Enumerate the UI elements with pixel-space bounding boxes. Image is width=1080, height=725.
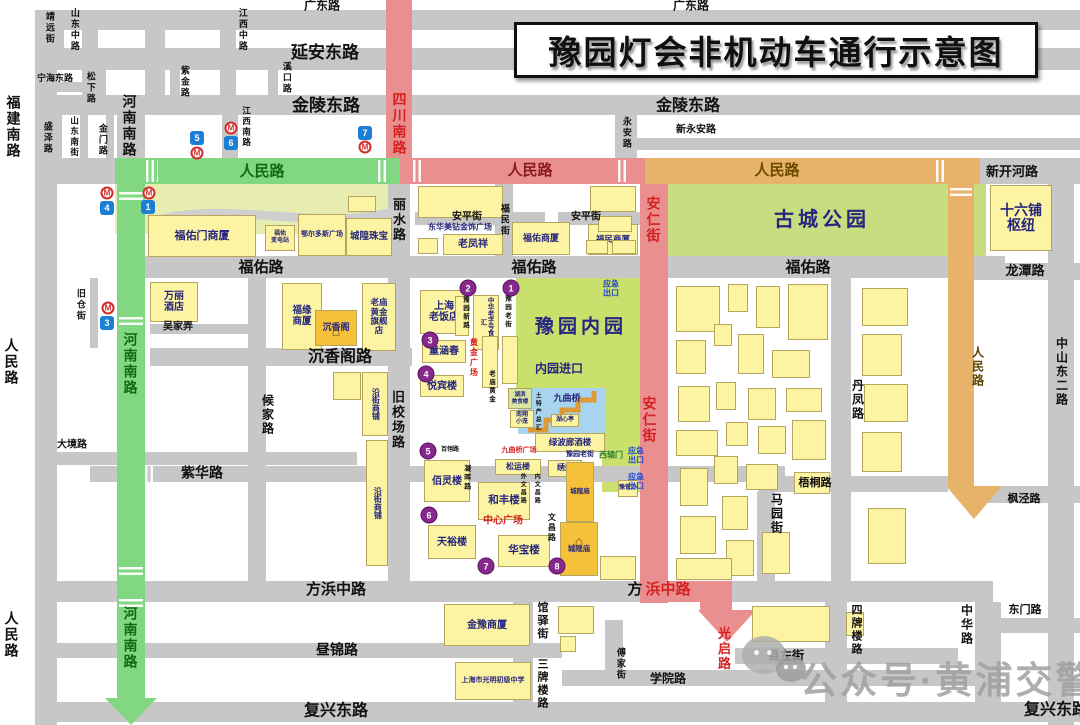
building <box>333 372 361 400</box>
building-label: 沿街商铺 <box>373 487 382 519</box>
metro-logo-icon: M <box>143 187 156 200</box>
street-label: 永安路 <box>621 117 631 150</box>
street-label: 应急 出口 <box>628 447 644 464</box>
street-label: 福建南路 <box>5 95 20 159</box>
metro-logo-icon: M <box>191 147 204 160</box>
street-label: 丹凤路 <box>851 379 864 421</box>
street-label: 福佑路 <box>238 260 283 276</box>
street-label: 人民路 <box>754 163 799 179</box>
route-segment-orange-renmin-route <box>645 158 980 184</box>
building <box>714 456 738 484</box>
building-labeled: 南翔 小笼 <box>510 410 534 428</box>
street-label: 馆驿街 <box>535 602 547 641</box>
street-label: 人民路 <box>971 346 984 388</box>
building-label: 华宝楼 <box>508 545 540 557</box>
building <box>348 196 376 212</box>
street-label: 广东路 <box>304 0 340 12</box>
building <box>676 430 718 456</box>
building <box>746 464 778 490</box>
street-label: 老庙黄金 <box>487 370 494 404</box>
building-label: 绿波廊酒楼 <box>549 438 592 447</box>
building <box>786 388 822 412</box>
building <box>726 422 748 446</box>
building <box>748 388 776 420</box>
street-label: 沉香阁路 <box>308 348 372 365</box>
building-label: 上海市光明初级中学 <box>462 677 525 685</box>
street-label: 旧校场路 <box>390 390 404 450</box>
building <box>502 336 518 384</box>
street-label: 人民路 <box>3 611 18 659</box>
street-label: 盛泽路 <box>42 122 52 155</box>
street-label: 福佑路 <box>511 260 556 276</box>
street-label: 江西南路 <box>241 106 250 148</box>
building <box>680 468 708 506</box>
building-label: 十六铺 枢纽 <box>1000 203 1042 234</box>
building-labeled: 湖心亭 <box>551 414 579 427</box>
numbered-point-marker: 6 <box>421 507 438 524</box>
building <box>862 288 908 326</box>
metro-logo-icon: M <box>225 122 238 135</box>
street-label: 金陵东路 <box>656 97 720 114</box>
road-xikou <box>268 68 278 95</box>
metro-line-badge: 5 <box>190 131 204 145</box>
street-label: 新永安路 <box>676 126 716 137</box>
street-label: 傅家街 <box>615 648 625 681</box>
crosswalk <box>146 160 158 182</box>
road-fangbang-mid <box>57 581 993 602</box>
metro-line-badge: 4 <box>100 201 114 215</box>
street-label: 马园街 <box>770 493 783 535</box>
crosswalk <box>119 316 143 325</box>
crosswalk <box>618 160 629 182</box>
street-label: 新开河路 <box>986 165 1038 179</box>
building <box>612 240 636 254</box>
building-labeled: 福佑门商厦 <box>148 215 256 257</box>
building <box>788 284 828 340</box>
building-label: 悦宾楼 <box>427 381 457 392</box>
building <box>762 532 790 574</box>
street-label: 山东中路 <box>69 8 79 52</box>
building <box>738 334 764 374</box>
street-label: 福佑路 <box>785 260 830 276</box>
street-label: 安平街 <box>571 213 601 224</box>
crosswalk <box>378 160 389 182</box>
building-label: 福佑 变电站 <box>271 231 289 244</box>
wechat-icon-eye <box>793 665 797 669</box>
wechat-icon-eye <box>767 650 772 655</box>
street-label: 学院路 <box>650 673 686 686</box>
metro-logo-icon: M <box>101 187 114 200</box>
building-label: 老凤祥 <box>458 239 488 250</box>
street-label: 丽水路 <box>391 198 405 243</box>
street-label: 浜中路 <box>645 582 690 598</box>
building-label: 福佑门商厦 <box>175 230 230 242</box>
building <box>716 382 736 410</box>
building-label: 湖滨 美食楼 <box>512 392 529 404</box>
street-label: 东门路 <box>1009 605 1042 617</box>
metro-line-badge: 1 <box>141 200 155 214</box>
metro-line-badge: 3 <box>100 316 114 330</box>
street-label: 豫园老街 <box>503 295 510 329</box>
building-label: 鄂尔多斯广场 <box>301 231 343 239</box>
street-label: 山东南街 <box>69 116 78 158</box>
route-arrow-green-henan-route <box>105 698 157 725</box>
street-label: 东华美钻金饰广场 <box>428 224 492 233</box>
street-label: 复兴东路 <box>304 702 368 719</box>
street-label: 旧仓街 <box>75 289 85 322</box>
numbered-point-marker: 4 <box>418 366 435 383</box>
building-labeled: 城隍珠宝 <box>346 218 392 256</box>
street-label: 豫园内园 <box>535 318 627 339</box>
building-labeled: 天裕楼 <box>428 525 476 559</box>
road-wutong <box>758 476 948 492</box>
temple-icon: ⌂ <box>575 533 583 549</box>
building <box>560 636 576 652</box>
numbered-point-marker: 3 <box>422 332 439 349</box>
street-label: 方浜中路 <box>306 582 366 598</box>
road-xinyongan <box>618 138 1080 150</box>
road-jiangxi-mid <box>220 10 236 95</box>
street-label: 梧桐路 <box>799 478 832 490</box>
crosswalk <box>119 566 143 575</box>
street-label: 应急 出口 <box>628 473 644 490</box>
building-labeled: 沿街商铺 <box>366 440 388 566</box>
building <box>792 420 826 460</box>
route-segment-orange-renmin-route <box>948 158 974 488</box>
crosswalk <box>413 160 424 182</box>
road-shengze <box>54 115 62 158</box>
map-title: 豫园灯会非机动车通行示意图 <box>514 22 1038 78</box>
metro-logo-icon: M <box>359 141 372 154</box>
building-label: 福佑商厦 <box>523 234 559 244</box>
street-label: 河南南路 <box>122 332 137 396</box>
street-label: 内文昌路 <box>533 473 539 505</box>
street-label: 河南南路 <box>121 94 136 158</box>
street-label: 安仁街 <box>645 196 660 244</box>
street-label: 九曲桥广场 <box>502 447 537 455</box>
street-label: 溪口路 <box>281 62 291 95</box>
street-label: 金门路 <box>97 124 107 157</box>
street-label: 安仁街 <box>641 396 656 444</box>
street-label: 内园进口 <box>535 363 583 376</box>
building-labeled: 老庙 黄金 旗舰 店 <box>362 283 396 351</box>
road-col-mid <box>145 10 165 95</box>
building-label: 和丰楼 <box>488 495 520 507</box>
building-labeled: 金豫商厦 <box>444 604 530 646</box>
street-label: 中华路 <box>960 604 973 646</box>
building <box>586 240 608 254</box>
building-label: 万丽 酒店 <box>164 291 184 313</box>
street-label: 广东路 <box>673 0 709 12</box>
numbered-point-marker: 2 <box>460 280 477 297</box>
numbered-point-marker: 8 <box>549 558 566 575</box>
street-label: 四牌楼路 <box>849 604 861 656</box>
building <box>728 284 748 312</box>
crosswalk <box>119 190 143 200</box>
numbered-point-marker: 1 <box>503 280 520 297</box>
street-label: 中山东二路 <box>1055 337 1068 407</box>
route-arrow-orange-renmin-route <box>946 486 1002 519</box>
street-label: 延安东路 <box>291 44 359 62</box>
yuyuan-traffic-map: 福佑门商厦福佑 变电站鄂尔多斯广场城隍珠宝老凤祥福佑商厦福民商厦万丽 酒店福缘 … <box>0 0 1080 725</box>
building-labeled: 湖滨 美食楼 <box>508 388 532 409</box>
street-label: 九曲桥 <box>553 394 580 404</box>
street-label: 吴家弄 <box>163 323 193 334</box>
building-label: 松运楼 <box>506 463 530 472</box>
street-label: 枫泾路 <box>1008 494 1041 506</box>
metro-line-badge: 7 <box>358 126 372 140</box>
building-labeled: 老凤祥 <box>443 234 503 255</box>
building-label: 南翔 小笼 <box>516 412 528 425</box>
road-jiucang <box>90 278 98 348</box>
building <box>558 606 594 634</box>
street-label: 大境路 <box>57 441 87 452</box>
building-label: 佰灵楼 <box>432 476 462 487</box>
building-labeled: 鄂尔多斯广场 <box>298 214 346 256</box>
street-label: 方 <box>627 582 642 598</box>
building <box>868 508 906 564</box>
crosswalk <box>950 186 972 196</box>
street-label: 中心广场 <box>483 517 523 528</box>
building-labeled: 沿街商铺 <box>362 372 388 436</box>
crosswalk <box>936 160 947 182</box>
street-label: 凝晖路 <box>463 465 471 492</box>
street-label: 外文昌路 <box>519 473 525 505</box>
building <box>722 496 748 530</box>
building-label: 城隍庙 <box>570 488 590 495</box>
street-label: 三牌楼路 <box>535 658 547 710</box>
building-labeled: 上海市光明初级中学 <box>455 662 531 700</box>
road-dajing <box>35 452 357 465</box>
building-label: 金豫商厦 <box>467 620 507 631</box>
street-label: 四川南路 <box>391 92 406 156</box>
building-labeled: 万丽 酒店 <box>150 282 198 322</box>
temple-icon: ⌂ <box>332 323 340 339</box>
building <box>418 238 438 254</box>
building-label: 湖心亭 <box>556 417 574 424</box>
street-label: 江西中路 <box>237 8 247 52</box>
building <box>862 334 902 376</box>
building <box>676 558 732 580</box>
building <box>714 324 732 346</box>
street-label: 宁海东路 <box>37 74 73 84</box>
road-shandong-south <box>80 115 88 158</box>
street-label: 人民路 <box>507 163 552 179</box>
building-label: 福缘 商厦 <box>292 306 311 327</box>
wechat-icon-eye <box>754 650 759 655</box>
street-label: 福民街 <box>499 204 509 237</box>
street-label: 靖远街 <box>44 12 54 45</box>
building-labeled: 福佑商厦 <box>512 222 570 255</box>
metro-line-badge: 6 <box>224 136 238 150</box>
building <box>680 516 716 554</box>
building-label: 老庙 黄金 旗舰 店 <box>370 298 387 335</box>
building <box>758 426 786 454</box>
building <box>600 556 636 580</box>
street-label: 百翎路 <box>441 447 459 453</box>
building-labeled: 城隍庙 <box>566 462 594 522</box>
street-label: 应急 出口 <box>603 280 619 297</box>
numbered-point-marker: 7 <box>478 558 495 575</box>
street-label: 土特产总汇 <box>534 392 540 432</box>
building <box>772 350 810 378</box>
building-labeled: 十六铺 枢纽 <box>990 185 1052 251</box>
road-danfeng <box>831 278 851 583</box>
building-labeled: 绿波廊酒楼 <box>535 433 605 452</box>
building <box>590 186 636 212</box>
crosswalk <box>145 466 155 482</box>
street-label: 紫华路 <box>181 465 223 480</box>
street-label: 豫园老街 <box>566 451 594 459</box>
building <box>598 216 632 232</box>
building-labeled: 华宝楼 <box>498 535 550 567</box>
route-segment-red-anren-route <box>700 581 732 613</box>
building-labeled: 城隍庙 <box>560 522 598 576</box>
street-label: 文昌路 <box>547 513 556 543</box>
street-label: 龙潭路 <box>1005 264 1044 278</box>
street-label: 松下路 <box>85 72 95 105</box>
street-label: 光启路 <box>716 627 730 672</box>
building <box>864 384 908 422</box>
building <box>862 432 902 472</box>
metro-logo-icon: M <box>102 302 115 315</box>
wechat-icon-eye <box>784 665 788 669</box>
street-label: 西辕门 <box>599 452 623 461</box>
street-label: 古城公园 <box>774 210 870 232</box>
road-jingyuan <box>56 10 64 48</box>
street-label: 金陵东路 <box>292 97 360 115</box>
building-label: 城隍珠宝 <box>350 232 388 242</box>
street-label: 人民路 <box>3 338 18 386</box>
building-label: 天裕楼 <box>437 537 467 548</box>
street-label: 黄金广场 <box>469 338 478 378</box>
numbered-point-marker: 5 <box>420 443 437 460</box>
watermark-text: 公众号·黄浦交警 <box>800 650 1080 704</box>
street-label: 豫园新路 <box>461 296 468 330</box>
building-label: 沿街商铺 <box>371 388 380 420</box>
street-label: 紫金路 <box>179 66 189 99</box>
street-label: 候家路 <box>261 394 274 436</box>
building <box>756 286 780 328</box>
road-jinling-east <box>35 95 1080 115</box>
building <box>676 340 706 374</box>
street-label: 河南南路 <box>122 606 137 670</box>
street-label: 昼锦路 <box>316 642 358 657</box>
road-fuxing-east <box>35 702 1080 722</box>
road-songxia <box>96 70 106 95</box>
street-label: 人民路 <box>239 164 284 180</box>
building-labeled: 福佑 变电站 <box>265 225 295 251</box>
building <box>678 386 710 422</box>
